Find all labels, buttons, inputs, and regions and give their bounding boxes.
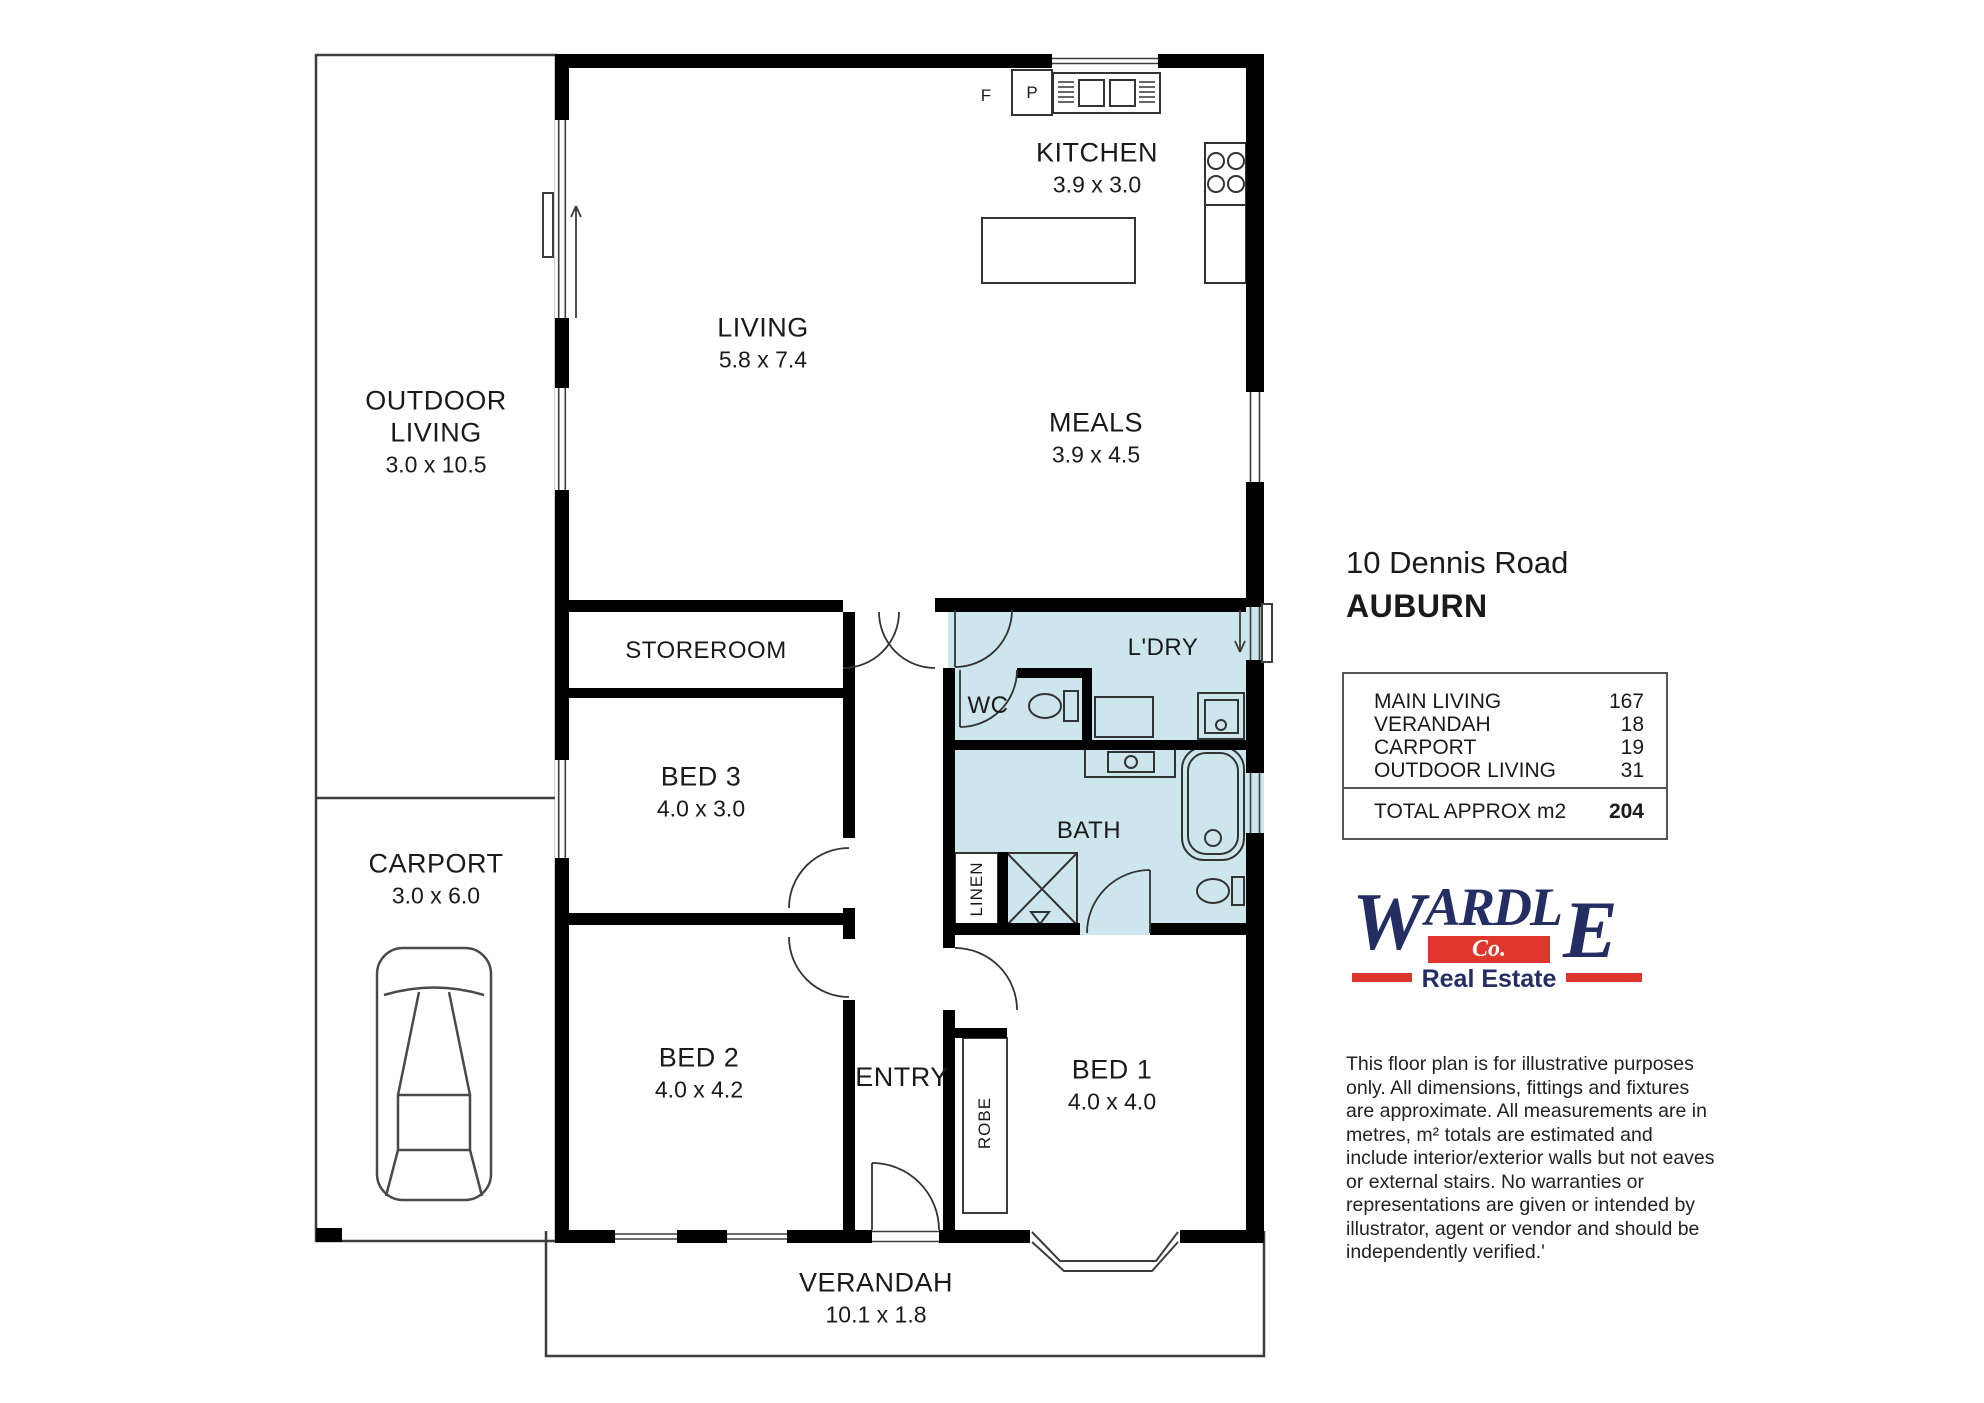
floor-plan-page: KITCHEN 3.9 x 3.0 LIVING 5.8 x 7.4 MEALS…	[0, 0, 1984, 1403]
window	[1052, 54, 1158, 68]
logo-bar-left	[1352, 973, 1412, 982]
room-label-ldry: L'DRY	[1128, 634, 1199, 662]
area-label: CARPORT	[1374, 736, 1476, 759]
room-label-entry: ENTRY	[855, 1062, 949, 1094]
room-label-robe: ROBE	[975, 1097, 995, 1149]
fridge-marker: F	[981, 86, 991, 106]
table-row: CARPORT 19	[1374, 736, 1644, 759]
window	[1246, 392, 1264, 482]
wall-stub	[316, 1228, 342, 1242]
room-label-bed2: BED 2 4.0 x 4.2	[655, 1043, 743, 1104]
door-arc	[872, 1163, 939, 1230]
cooktop-icon	[1205, 143, 1246, 283]
window	[555, 388, 569, 490]
logo-tagline: Real Estate	[1416, 965, 1562, 994]
room-label-verandah: VERANDAH 10.1 x 1.8	[799, 1268, 953, 1329]
room-label-linen: LINEN	[967, 861, 987, 916]
sink-icon	[1053, 73, 1160, 113]
window	[555, 760, 569, 858]
room-label-bed3: BED 3 4.0 x 3.0	[657, 762, 745, 823]
window	[555, 257, 569, 318]
room-label-bed1: BED 1 4.0 x 4.0	[1068, 1055, 1156, 1116]
pantry-marker: P	[1026, 83, 1037, 103]
window	[727, 1230, 787, 1243]
area-value: 18	[1621, 713, 1644, 736]
area-label: VERANDAH	[1374, 713, 1491, 736]
logo-bar-right	[1566, 973, 1642, 982]
address-street: 10 Dennis Road	[1346, 545, 1568, 581]
outdoor-living-outline	[316, 55, 556, 1241]
total-value: 204	[1609, 800, 1644, 824]
window	[615, 1230, 677, 1243]
room-label-storeroom: STOREROOM	[625, 637, 786, 665]
address-suburb: AUBURN	[1346, 588, 1488, 625]
room-label-living: LIVING 5.8 x 7.4	[717, 313, 809, 374]
area-label: OUTDOOR LIVING	[1374, 759, 1556, 782]
wardle-logo: WARDLE Co. Real Estate	[1352, 872, 1672, 1007]
room-label-outdoor-living: OUTDOOR LIVING 3.0 x 10.5	[365, 386, 507, 479]
table-total-row: TOTAL APPROX m2 204	[1374, 800, 1644, 824]
total-label: TOTAL APPROX m2	[1374, 800, 1566, 824]
disclaimer-text: This floor plan is for illustrative purp…	[1346, 1053, 1718, 1265]
table-divider	[1344, 787, 1666, 789]
door-arc	[789, 937, 849, 997]
table-row: VERANDAH 18	[1374, 713, 1644, 736]
area-value: 31	[1621, 759, 1644, 782]
area-value: 167	[1609, 690, 1644, 713]
window	[555, 120, 569, 193]
front-door-opening	[872, 1230, 939, 1243]
window	[1246, 773, 1264, 833]
room-label-bath: BATH	[1057, 817, 1121, 845]
logo-co-badge: Co.	[1428, 936, 1550, 963]
table-row: OUTDOOR LIVING 31	[1374, 759, 1644, 782]
island-bench	[982, 218, 1135, 283]
room-label-meals: MEALS 3.9 x 4.5	[1049, 408, 1143, 469]
room-label-kitchen: KITCHEN 3.9 x 3.0	[1036, 138, 1158, 199]
door-direction-arrow	[571, 206, 581, 318]
door-arc	[789, 848, 849, 908]
room-label-carport: CARPORT 3.0 x 6.0	[368, 849, 503, 910]
bay-window	[1030, 1230, 1180, 1271]
door-arc	[879, 612, 935, 668]
area-label: MAIN LIVING	[1374, 690, 1501, 713]
car-icon	[377, 948, 491, 1200]
area-summary-table: MAIN LIVING 167 VERANDAH 18 CARPORT 19 O…	[1342, 672, 1668, 840]
door-arc	[955, 948, 1017, 1010]
table-row: MAIN LIVING 167	[1374, 690, 1644, 713]
room-label-wc: WC	[968, 692, 1009, 720]
area-value: 19	[1621, 736, 1644, 759]
